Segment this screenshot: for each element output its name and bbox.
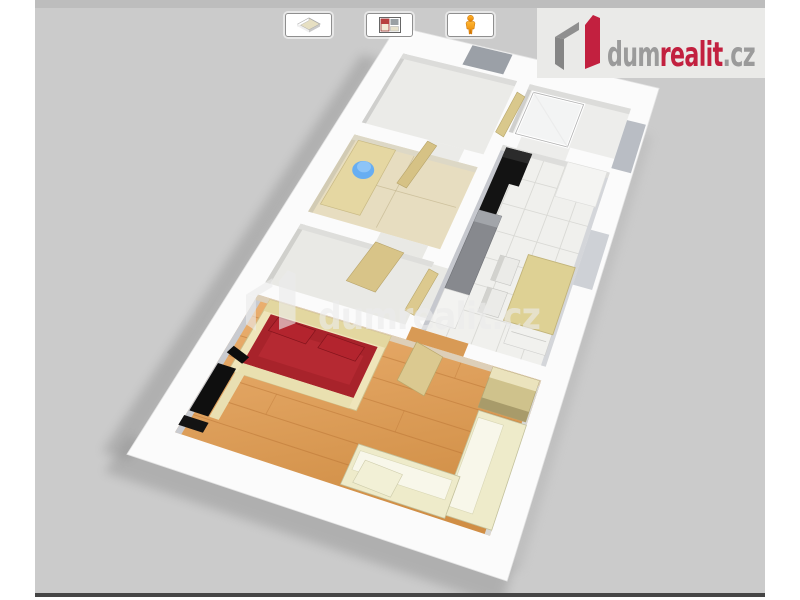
dumrealit-logo-icon <box>555 15 600 70</box>
dumrealit-logo[interactable]: dumrealit.cz <box>537 8 765 78</box>
floorplan-3d-icon <box>296 16 322 34</box>
person-icon <box>464 15 477 35</box>
watermark-text: dumrealit.cz <box>318 295 540 338</box>
page: dumrealit.cz <box>0 0 800 600</box>
panel-bottom-bar <box>35 593 765 597</box>
panel-top-band <box>35 0 765 8</box>
logo-text: dumrealit.cz <box>607 35 755 75</box>
floorplan-2d-icon <box>379 17 401 33</box>
floorplan-3d-render: dumrealit.cz <box>35 0 765 597</box>
walkthrough-button[interactable] <box>447 13 494 37</box>
view-2d-button[interactable] <box>366 13 413 37</box>
view-3d-button[interactable] <box>285 13 332 37</box>
viewer-panel: dumrealit.cz <box>35 0 765 597</box>
